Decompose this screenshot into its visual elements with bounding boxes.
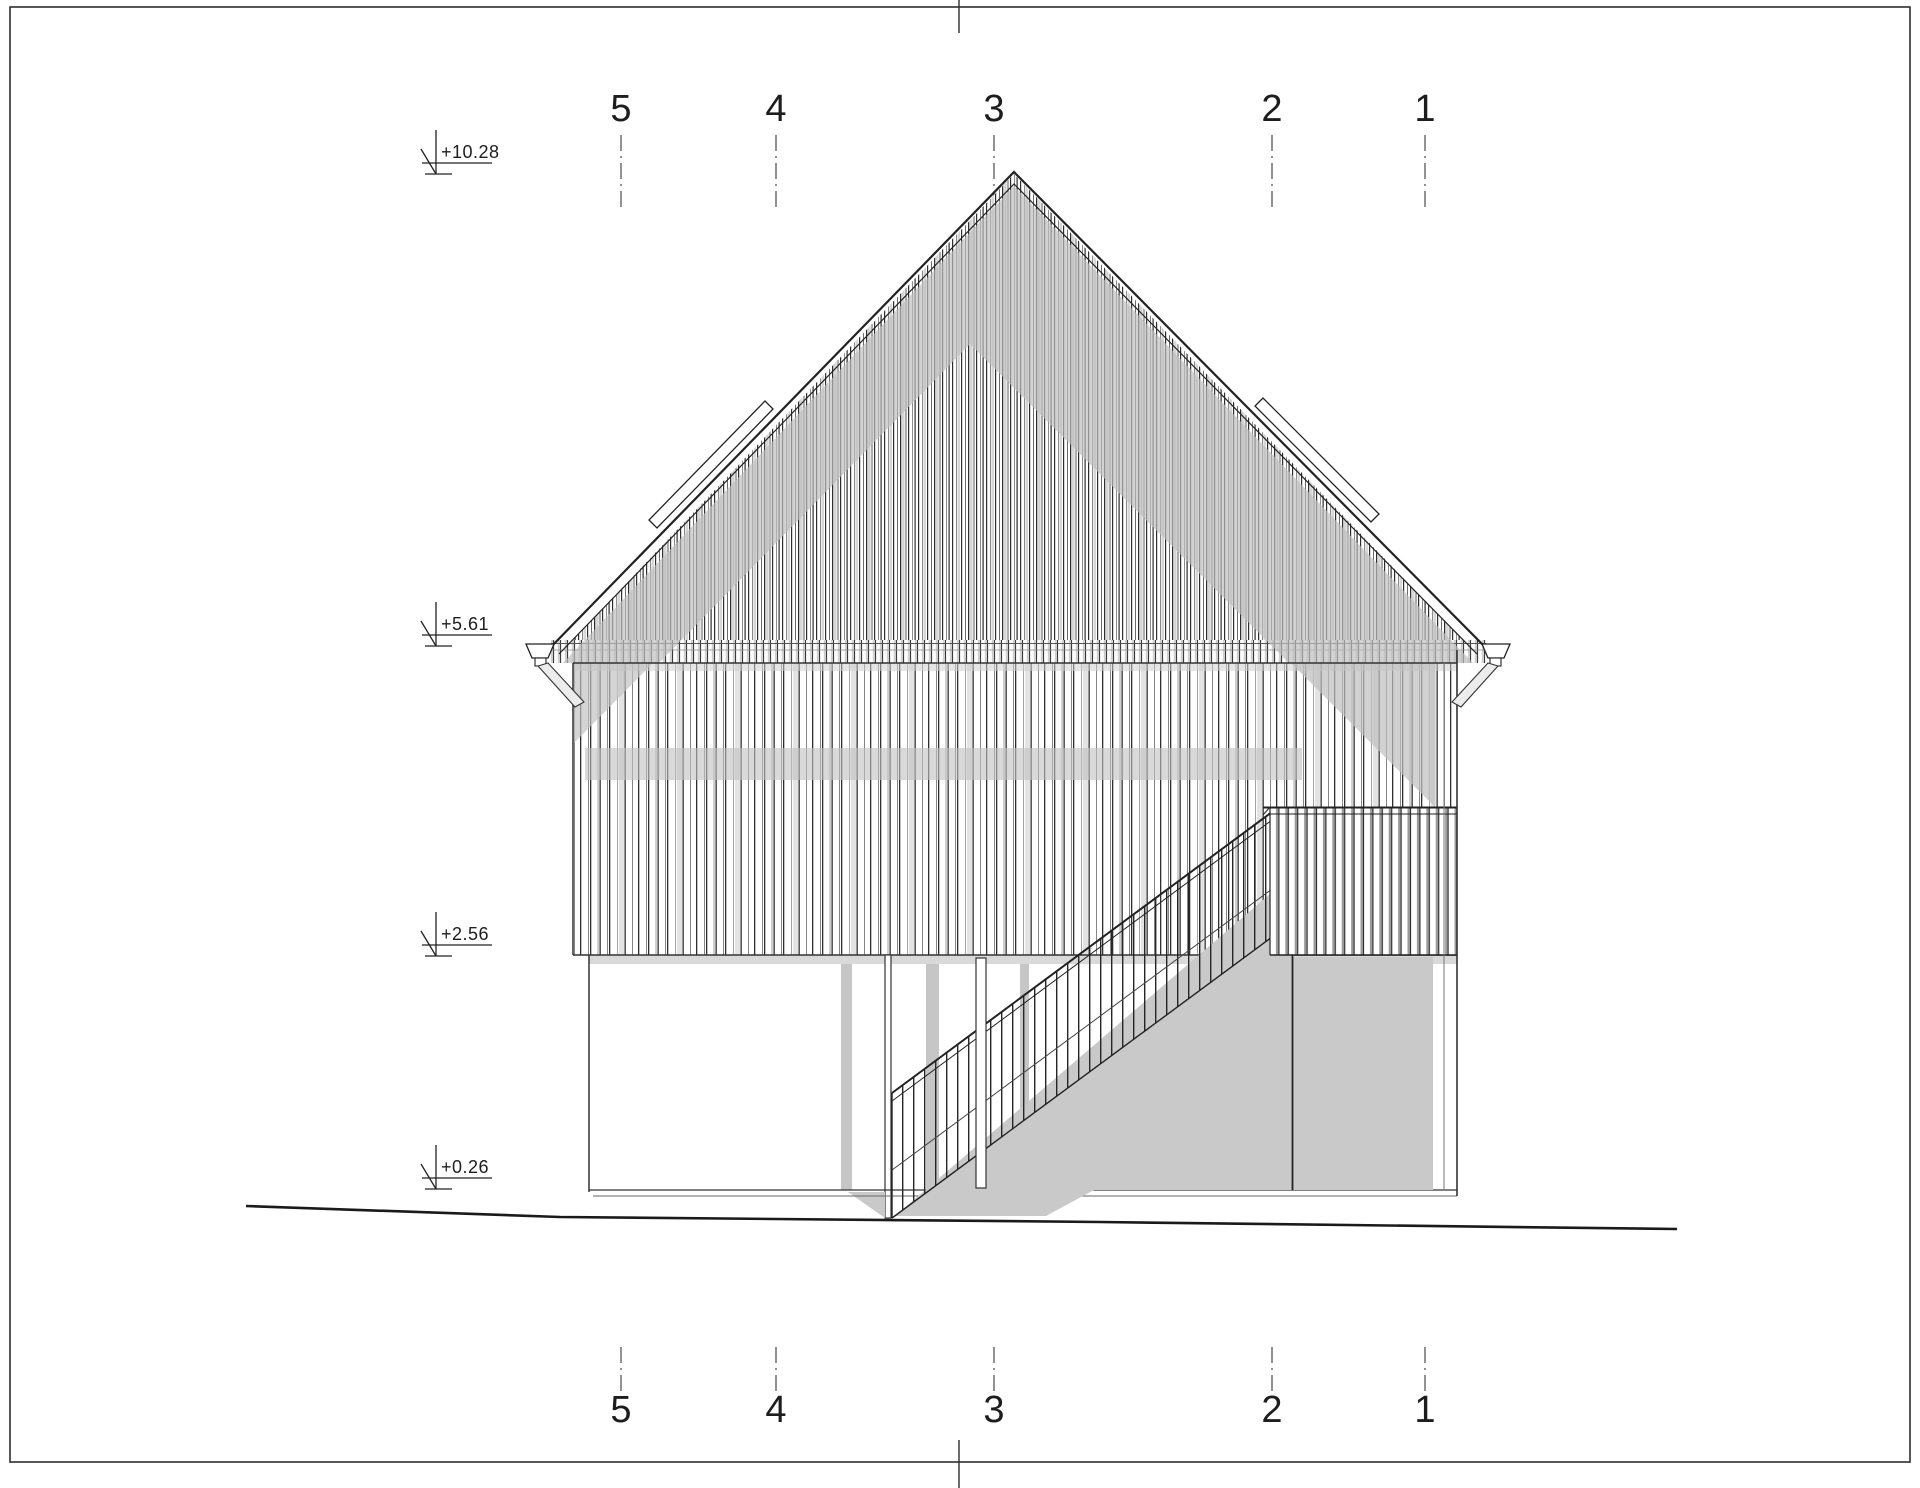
drawing-sheet: 5 4 3 2 1 5 4 3 2 1 +10.28 +5.61 +2.56 +…	[0, 0, 1920, 1488]
downspout-right	[1452, 663, 1498, 707]
column-rear	[885, 955, 891, 1218]
column-front	[976, 958, 986, 1188]
landing-under-shadow	[1293, 957, 1433, 1190]
grid-label-bottom-5: 5	[591, 1390, 651, 1430]
grid-label-top-2: 2	[1242, 89, 1302, 129]
grid-label-top-5: 5	[591, 89, 651, 129]
grid-label-bottom-2: 2	[1242, 1390, 1302, 1430]
elevation-linework	[0, 0, 1920, 1488]
facade-shadow-band	[585, 748, 1302, 780]
grid-label-bottom-4: 4	[746, 1390, 806, 1430]
post-shadow-1	[841, 964, 852, 1190]
level-label-ground: +0.26	[441, 1157, 489, 1177]
level-label-floor: +2.56	[441, 924, 489, 944]
grid-label-bottom-3: 3	[964, 1390, 1024, 1430]
grid-label-top-4: 4	[746, 89, 806, 129]
grid-label-top-1: 1	[1395, 89, 1455, 129]
level-label-ridge: +10.28	[441, 142, 500, 162]
grid-label-top-3: 3	[964, 89, 1024, 129]
level-markers	[421, 130, 492, 1189]
level-label-eaves: +5.61	[441, 614, 489, 634]
grid-label-bottom-1: 1	[1395, 1390, 1455, 1430]
